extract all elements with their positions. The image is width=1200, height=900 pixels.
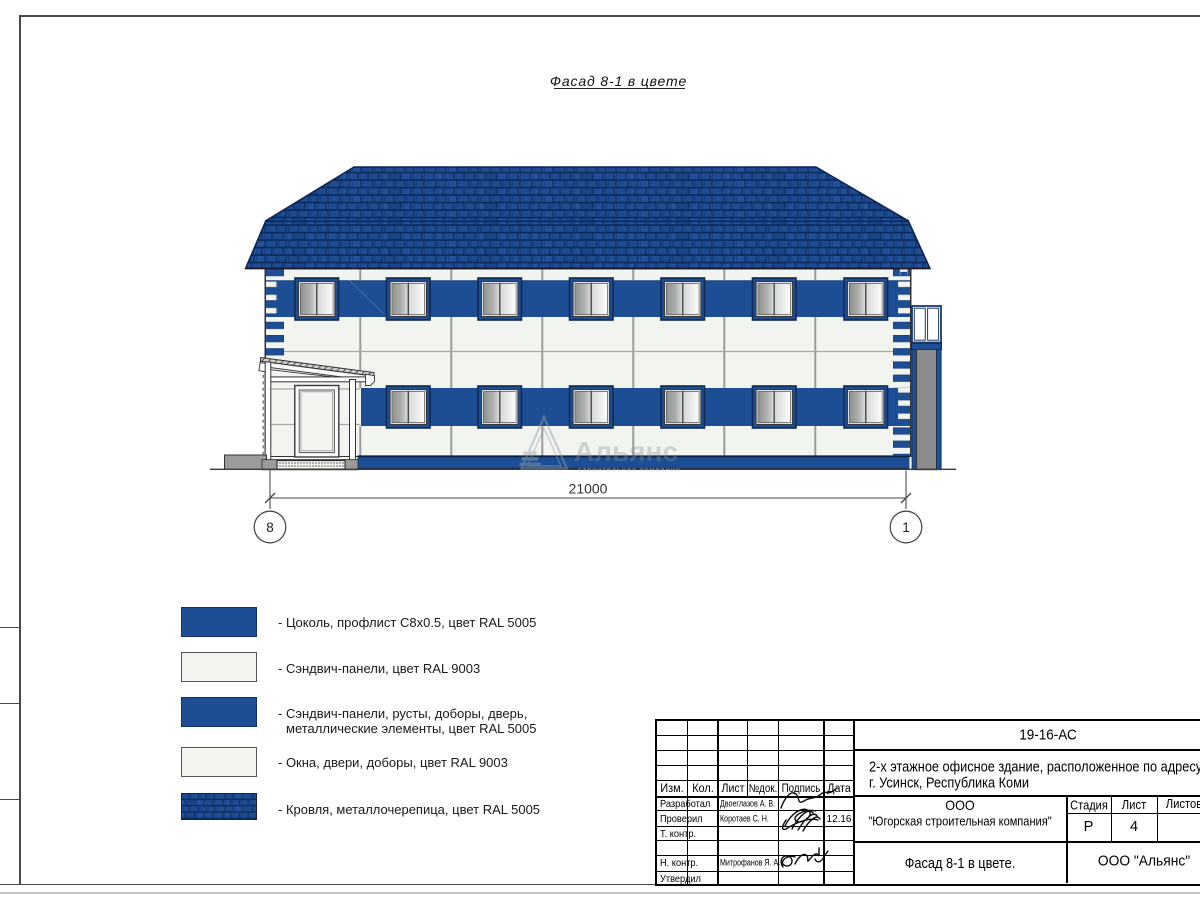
svg-text:21000: 21000: [569, 481, 608, 497]
svg-text:8: 8: [266, 520, 274, 535]
svg-text:строительная компания: строительная компания: [578, 465, 681, 474]
svg-text:1: 1: [902, 520, 910, 535]
svg-text:Альянс: Альянс: [574, 436, 678, 467]
